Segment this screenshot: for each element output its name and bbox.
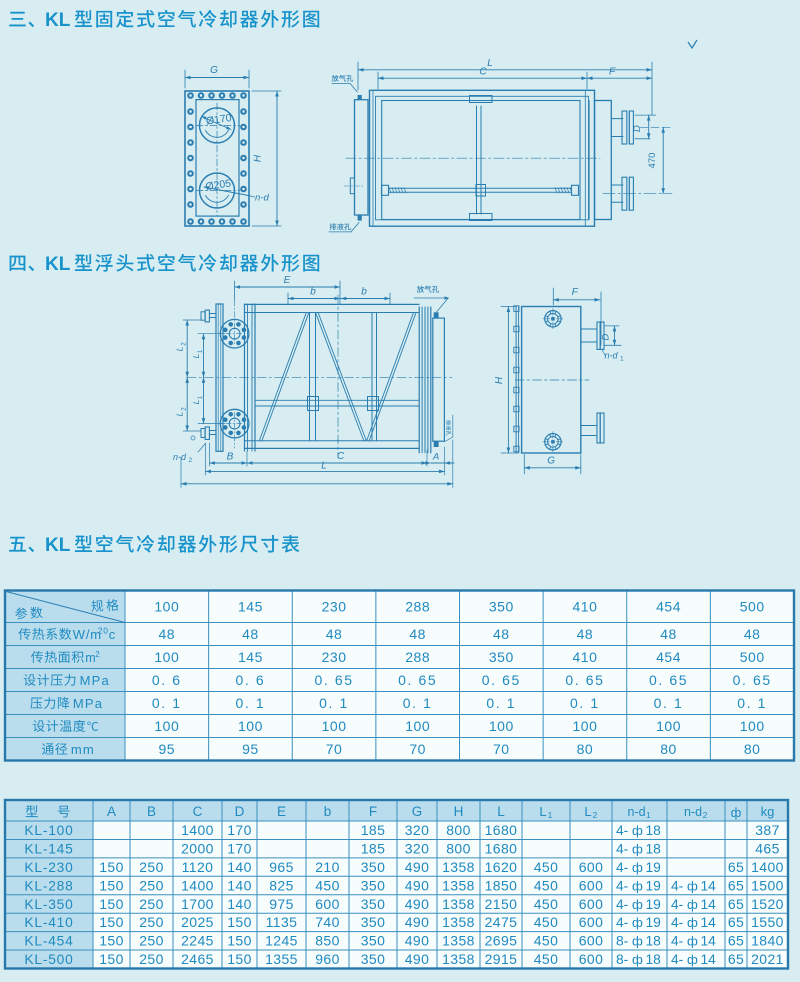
svg-text:1: 1 bbox=[646, 810, 651, 820]
svg-text:48: 48 bbox=[159, 626, 176, 642]
svg-text:L: L bbox=[175, 411, 185, 416]
svg-text:G: G bbox=[547, 456, 555, 467]
svg-text:1620: 1620 bbox=[485, 859, 518, 875]
svg-text:288: 288 bbox=[405, 599, 430, 615]
svg-text:2695: 2695 bbox=[485, 933, 518, 949]
svg-text:4-: 4- bbox=[616, 915, 628, 930]
svg-text:F: F bbox=[609, 67, 616, 78]
svg-text:KL-145: KL-145 bbox=[24, 841, 73, 856]
svg-text:14: 14 bbox=[701, 915, 717, 930]
svg-text:150: 150 bbox=[99, 914, 124, 930]
svg-text:490: 490 bbox=[405, 951, 430, 967]
svg-text:ф: ф bbox=[632, 897, 643, 912]
svg-text:4-: 4- bbox=[671, 915, 683, 930]
svg-text:L: L bbox=[321, 461, 327, 472]
svg-text:0. 1: 0. 1 bbox=[319, 695, 349, 711]
svg-text:B: B bbox=[227, 452, 234, 463]
svg-text:250: 250 bbox=[139, 914, 164, 930]
svg-text:70: 70 bbox=[409, 741, 426, 757]
svg-text:D: D bbox=[235, 804, 245, 819]
svg-text:C: C bbox=[337, 451, 345, 462]
svg-text:2465: 2465 bbox=[181, 951, 214, 967]
svg-text:1358: 1358 bbox=[442, 896, 475, 912]
svg-text:ф: ф bbox=[632, 878, 643, 893]
svg-text:4-: 4- bbox=[671, 878, 683, 893]
svg-text:2000: 2000 bbox=[181, 840, 214, 856]
svg-text:KL: KL bbox=[45, 10, 71, 31]
svg-text:490: 490 bbox=[405, 933, 430, 949]
svg-text:19: 19 bbox=[646, 878, 662, 893]
svg-text:F: F bbox=[572, 287, 579, 298]
svg-text:185: 185 bbox=[361, 840, 386, 856]
svg-text:450: 450 bbox=[534, 914, 559, 930]
svg-text:18: 18 bbox=[646, 823, 662, 838]
svg-text:100: 100 bbox=[322, 718, 347, 734]
svg-text:A: A bbox=[432, 452, 439, 463]
svg-text:L: L bbox=[487, 58, 493, 69]
svg-text:500: 500 bbox=[740, 649, 765, 665]
svg-text:1358: 1358 bbox=[442, 859, 475, 875]
svg-text:4-: 4- bbox=[616, 878, 628, 893]
svg-text:140: 140 bbox=[227, 877, 252, 893]
svg-text:8-: 8- bbox=[616, 952, 628, 967]
svg-text:48: 48 bbox=[493, 626, 510, 642]
svg-text:2245: 2245 bbox=[181, 933, 214, 949]
svg-text:170: 170 bbox=[227, 822, 252, 838]
svg-text:100: 100 bbox=[154, 718, 179, 734]
svg-text:48: 48 bbox=[660, 626, 677, 642]
svg-text:1680: 1680 bbox=[485, 840, 518, 856]
svg-text:490: 490 bbox=[405, 877, 430, 893]
svg-text:150: 150 bbox=[227, 914, 252, 930]
svg-text:975: 975 bbox=[269, 896, 294, 912]
svg-text:b: b bbox=[361, 287, 367, 298]
svg-text:350: 350 bbox=[489, 649, 514, 665]
svg-text:1358: 1358 bbox=[442, 933, 475, 949]
svg-text:0. 65: 0. 65 bbox=[482, 672, 521, 688]
svg-text:1: 1 bbox=[620, 356, 624, 363]
svg-text:4-: 4- bbox=[616, 823, 628, 838]
svg-text:1400: 1400 bbox=[181, 877, 214, 893]
svg-text:150: 150 bbox=[99, 877, 124, 893]
svg-text:L: L bbox=[497, 804, 505, 819]
svg-text:19: 19 bbox=[646, 915, 662, 930]
svg-text:100: 100 bbox=[154, 599, 179, 615]
svg-text:320: 320 bbox=[405, 840, 430, 856]
svg-text:n-d: n-d bbox=[627, 805, 645, 819]
svg-text:70: 70 bbox=[326, 741, 343, 757]
svg-text:ф: ф bbox=[632, 952, 643, 967]
svg-text:48: 48 bbox=[242, 626, 259, 642]
svg-text:D: D bbox=[601, 333, 612, 340]
svg-text:100: 100 bbox=[740, 718, 765, 734]
svg-text:19: 19 bbox=[646, 860, 662, 875]
svg-text:ф: ф bbox=[632, 915, 643, 930]
svg-text:600: 600 bbox=[579, 896, 604, 912]
svg-text:350: 350 bbox=[361, 877, 386, 893]
svg-text:150: 150 bbox=[227, 951, 252, 967]
svg-text:1520: 1520 bbox=[751, 896, 784, 912]
svg-text:65: 65 bbox=[728, 896, 744, 912]
svg-text:800: 800 bbox=[446, 840, 471, 856]
svg-text:L: L bbox=[584, 804, 591, 819]
svg-text:1680: 1680 bbox=[485, 822, 518, 838]
svg-text:18: 18 bbox=[646, 934, 662, 949]
svg-text:65: 65 bbox=[728, 951, 744, 967]
svg-text:185: 185 bbox=[361, 822, 386, 838]
svg-text:4-: 4- bbox=[616, 897, 628, 912]
svg-text:1358: 1358 bbox=[442, 914, 475, 930]
svg-text:0. 65: 0. 65 bbox=[565, 672, 604, 688]
svg-text:E: E bbox=[284, 275, 291, 286]
svg-text:KL-410: KL-410 bbox=[24, 915, 73, 930]
svg-text:490: 490 bbox=[405, 896, 430, 912]
svg-text:48: 48 bbox=[409, 626, 426, 642]
svg-text:450: 450 bbox=[534, 859, 559, 875]
svg-text:1245: 1245 bbox=[265, 933, 298, 949]
svg-text:ф: ф bbox=[687, 934, 698, 949]
svg-text:65: 65 bbox=[728, 914, 744, 930]
svg-text:L: L bbox=[539, 804, 546, 819]
svg-text:ф: ф bbox=[632, 841, 643, 856]
svg-text:410: 410 bbox=[573, 599, 598, 615]
svg-text:0. 1: 0. 1 bbox=[486, 695, 516, 711]
svg-text:ф: ф bbox=[632, 823, 643, 838]
svg-text:1355: 1355 bbox=[265, 951, 298, 967]
svg-text:100: 100 bbox=[573, 718, 598, 734]
svg-text:14: 14 bbox=[701, 934, 717, 949]
svg-text:454: 454 bbox=[656, 599, 681, 615]
svg-text:m: m bbox=[85, 651, 95, 665]
svg-text:1500: 1500 bbox=[751, 877, 784, 893]
svg-text:465: 465 bbox=[755, 840, 780, 856]
svg-text:70: 70 bbox=[493, 741, 510, 757]
svg-text:4-: 4- bbox=[671, 952, 683, 967]
svg-text:0. 1: 0. 1 bbox=[236, 695, 266, 711]
svg-text:n-d: n-d bbox=[173, 452, 187, 462]
svg-text:n-d: n-d bbox=[605, 351, 619, 361]
svg-text:14: 14 bbox=[701, 897, 717, 912]
svg-text:D: D bbox=[632, 125, 643, 132]
svg-text:KL: KL bbox=[45, 254, 71, 275]
svg-text:14: 14 bbox=[701, 878, 717, 893]
svg-text:48: 48 bbox=[744, 626, 761, 642]
svg-text:2021: 2021 bbox=[751, 951, 784, 967]
svg-text:65: 65 bbox=[728, 933, 744, 949]
svg-text:825: 825 bbox=[269, 877, 294, 893]
svg-text:740: 740 bbox=[315, 914, 340, 930]
svg-text:450: 450 bbox=[534, 877, 559, 893]
svg-text:100: 100 bbox=[489, 718, 514, 734]
svg-text:95: 95 bbox=[159, 741, 176, 757]
svg-text:mm: mm bbox=[71, 742, 95, 757]
svg-text:145: 145 bbox=[238, 649, 263, 665]
svg-text:C: C bbox=[479, 67, 487, 78]
svg-text:2150: 2150 bbox=[485, 896, 518, 912]
svg-text:1358: 1358 bbox=[442, 951, 475, 967]
svg-text:G: G bbox=[412, 804, 423, 819]
svg-text:KL: KL bbox=[45, 535, 71, 556]
svg-text:19: 19 bbox=[646, 897, 662, 912]
svg-text:G: G bbox=[210, 65, 218, 76]
svg-text:0. 1: 0. 1 bbox=[152, 695, 182, 711]
svg-text:0. 65: 0. 65 bbox=[398, 672, 437, 688]
svg-text:F: F bbox=[369, 804, 377, 819]
svg-text:80: 80 bbox=[744, 741, 761, 757]
svg-text:150: 150 bbox=[227, 933, 252, 949]
svg-text:4-: 4- bbox=[671, 897, 683, 912]
svg-text:387: 387 bbox=[755, 822, 780, 838]
svg-text:140: 140 bbox=[227, 896, 252, 912]
svg-text:2915: 2915 bbox=[485, 951, 518, 967]
svg-text:KL-230: KL-230 bbox=[24, 860, 73, 875]
svg-text:800: 800 bbox=[446, 822, 471, 838]
svg-text:KL-288: KL-288 bbox=[24, 878, 73, 893]
svg-text:1: 1 bbox=[548, 810, 553, 820]
svg-text:0. 1: 0. 1 bbox=[570, 695, 600, 711]
svg-text:4-: 4- bbox=[616, 860, 628, 875]
svg-text:65: 65 bbox=[728, 877, 744, 893]
svg-text:80: 80 bbox=[660, 741, 677, 757]
svg-text:210: 210 bbox=[315, 859, 340, 875]
svg-text:0. 65: 0. 65 bbox=[649, 672, 688, 688]
svg-text:n-d: n-d bbox=[255, 193, 269, 204]
svg-text:ф: ф bbox=[687, 878, 698, 893]
svg-text:H: H bbox=[253, 154, 264, 162]
svg-text:KL-100: KL-100 bbox=[24, 823, 73, 838]
svg-text:0: 0 bbox=[103, 625, 108, 635]
svg-text:48: 48 bbox=[326, 626, 343, 642]
svg-text:1358: 1358 bbox=[442, 877, 475, 893]
svg-text:100: 100 bbox=[238, 718, 263, 734]
svg-text:350: 350 bbox=[361, 933, 386, 949]
svg-text:450: 450 bbox=[534, 933, 559, 949]
svg-text:2: 2 bbox=[593, 810, 598, 820]
svg-text:E: E bbox=[277, 804, 286, 819]
svg-text:MPa: MPa bbox=[73, 696, 103, 711]
svg-text:ф: ф bbox=[731, 805, 742, 820]
svg-text:250: 250 bbox=[139, 951, 164, 967]
svg-text:0. 6: 0. 6 bbox=[152, 672, 182, 688]
svg-text:150: 150 bbox=[99, 859, 124, 875]
svg-text:965: 965 bbox=[269, 859, 294, 875]
svg-text:500: 500 bbox=[740, 599, 765, 615]
svg-text:H: H bbox=[494, 376, 505, 384]
svg-text:2025: 2025 bbox=[181, 914, 214, 930]
svg-text:350: 350 bbox=[361, 951, 386, 967]
svg-text:4-: 4- bbox=[671, 934, 683, 949]
svg-text:250: 250 bbox=[139, 896, 164, 912]
svg-text:1135: 1135 bbox=[266, 914, 298, 930]
svg-text:14: 14 bbox=[701, 952, 717, 967]
svg-text:600: 600 bbox=[579, 951, 604, 967]
svg-text:B: B bbox=[147, 804, 156, 819]
svg-text:490: 490 bbox=[405, 859, 430, 875]
svg-text:n-d: n-d bbox=[684, 805, 702, 819]
svg-text:350: 350 bbox=[361, 914, 386, 930]
svg-text:4-: 4- bbox=[616, 841, 628, 856]
svg-text:ф: ф bbox=[687, 952, 698, 967]
svg-text:2: 2 bbox=[95, 650, 100, 659]
svg-text:H: H bbox=[454, 804, 464, 819]
svg-text:0. 1: 0. 1 bbox=[737, 695, 767, 711]
svg-text:288: 288 bbox=[405, 649, 430, 665]
svg-text:C: C bbox=[193, 804, 203, 819]
svg-text:KL-500: KL-500 bbox=[24, 952, 73, 967]
svg-text:100: 100 bbox=[656, 718, 681, 734]
svg-text:KL-350: KL-350 bbox=[24, 897, 73, 912]
svg-text:1400: 1400 bbox=[181, 822, 214, 838]
svg-text:100: 100 bbox=[405, 718, 430, 734]
svg-text:0. 65: 0. 65 bbox=[733, 672, 772, 688]
svg-text:250: 250 bbox=[139, 859, 164, 875]
svg-text:0. 1: 0. 1 bbox=[654, 695, 684, 711]
svg-text:450: 450 bbox=[534, 896, 559, 912]
svg-text:150: 150 bbox=[99, 896, 124, 912]
svg-text:350: 350 bbox=[361, 859, 386, 875]
svg-text:250: 250 bbox=[139, 877, 164, 893]
svg-text:0. 1: 0. 1 bbox=[403, 695, 433, 711]
svg-text:490: 490 bbox=[405, 914, 430, 930]
svg-text:ф: ф bbox=[687, 897, 698, 912]
svg-text:2475: 2475 bbox=[485, 914, 518, 930]
svg-text:b: b bbox=[310, 287, 316, 298]
svg-text:1120: 1120 bbox=[182, 859, 214, 875]
svg-text:2: 2 bbox=[189, 457, 193, 464]
svg-text:ф: ф bbox=[632, 934, 643, 949]
svg-text:ф: ф bbox=[632, 860, 643, 875]
svg-text:80: 80 bbox=[577, 741, 594, 757]
svg-text:600: 600 bbox=[579, 933, 604, 949]
svg-text:850: 850 bbox=[315, 933, 340, 949]
svg-text:250: 250 bbox=[139, 933, 164, 949]
svg-text:600: 600 bbox=[579, 877, 604, 893]
svg-text:150: 150 bbox=[99, 933, 124, 949]
svg-text:A: A bbox=[107, 804, 116, 819]
svg-text:145: 145 bbox=[238, 599, 263, 615]
svg-text:170: 170 bbox=[227, 840, 252, 856]
svg-text:95: 95 bbox=[242, 741, 259, 757]
svg-text:960: 960 bbox=[315, 951, 340, 967]
svg-text:18: 18 bbox=[646, 952, 662, 967]
svg-text:150: 150 bbox=[99, 951, 124, 967]
svg-text:b: b bbox=[324, 804, 332, 819]
svg-text:8-: 8- bbox=[616, 934, 628, 949]
svg-text:1850: 1850 bbox=[485, 877, 518, 893]
svg-text:450: 450 bbox=[315, 877, 340, 893]
svg-text:230: 230 bbox=[322, 599, 347, 615]
svg-text:0. 65: 0. 65 bbox=[314, 672, 353, 688]
svg-text:MPa: MPa bbox=[80, 673, 110, 688]
svg-text:350: 350 bbox=[489, 599, 514, 615]
svg-text:600: 600 bbox=[579, 859, 604, 875]
svg-text:c: c bbox=[109, 627, 116, 642]
svg-text:2: 2 bbox=[98, 625, 103, 635]
svg-text:48: 48 bbox=[577, 626, 594, 642]
svg-text:L: L bbox=[175, 346, 185, 351]
svg-text:ф: ф bbox=[687, 915, 698, 930]
svg-text:450: 450 bbox=[534, 951, 559, 967]
svg-text:1840: 1840 bbox=[751, 933, 784, 949]
svg-text:18: 18 bbox=[646, 841, 662, 856]
svg-text:230: 230 bbox=[322, 649, 347, 665]
svg-text:1550: 1550 bbox=[751, 914, 784, 930]
svg-text:320: 320 bbox=[405, 822, 430, 838]
svg-text:1700: 1700 bbox=[181, 896, 214, 912]
svg-text:100: 100 bbox=[154, 649, 179, 665]
svg-text:2: 2 bbox=[703, 810, 708, 820]
svg-text:600: 600 bbox=[315, 896, 340, 912]
svg-text:KL-454: KL-454 bbox=[24, 934, 73, 949]
svg-text:kg: kg bbox=[761, 804, 775, 819]
svg-text:600: 600 bbox=[579, 914, 604, 930]
svg-text:350: 350 bbox=[361, 896, 386, 912]
svg-text:454: 454 bbox=[656, 649, 681, 665]
svg-text:140: 140 bbox=[227, 859, 252, 875]
svg-text:65: 65 bbox=[728, 859, 744, 875]
svg-text:0. 6: 0. 6 bbox=[236, 672, 266, 688]
svg-text:410: 410 bbox=[573, 649, 598, 665]
svg-text:470: 470 bbox=[647, 153, 658, 169]
svg-text:1400: 1400 bbox=[751, 859, 784, 875]
